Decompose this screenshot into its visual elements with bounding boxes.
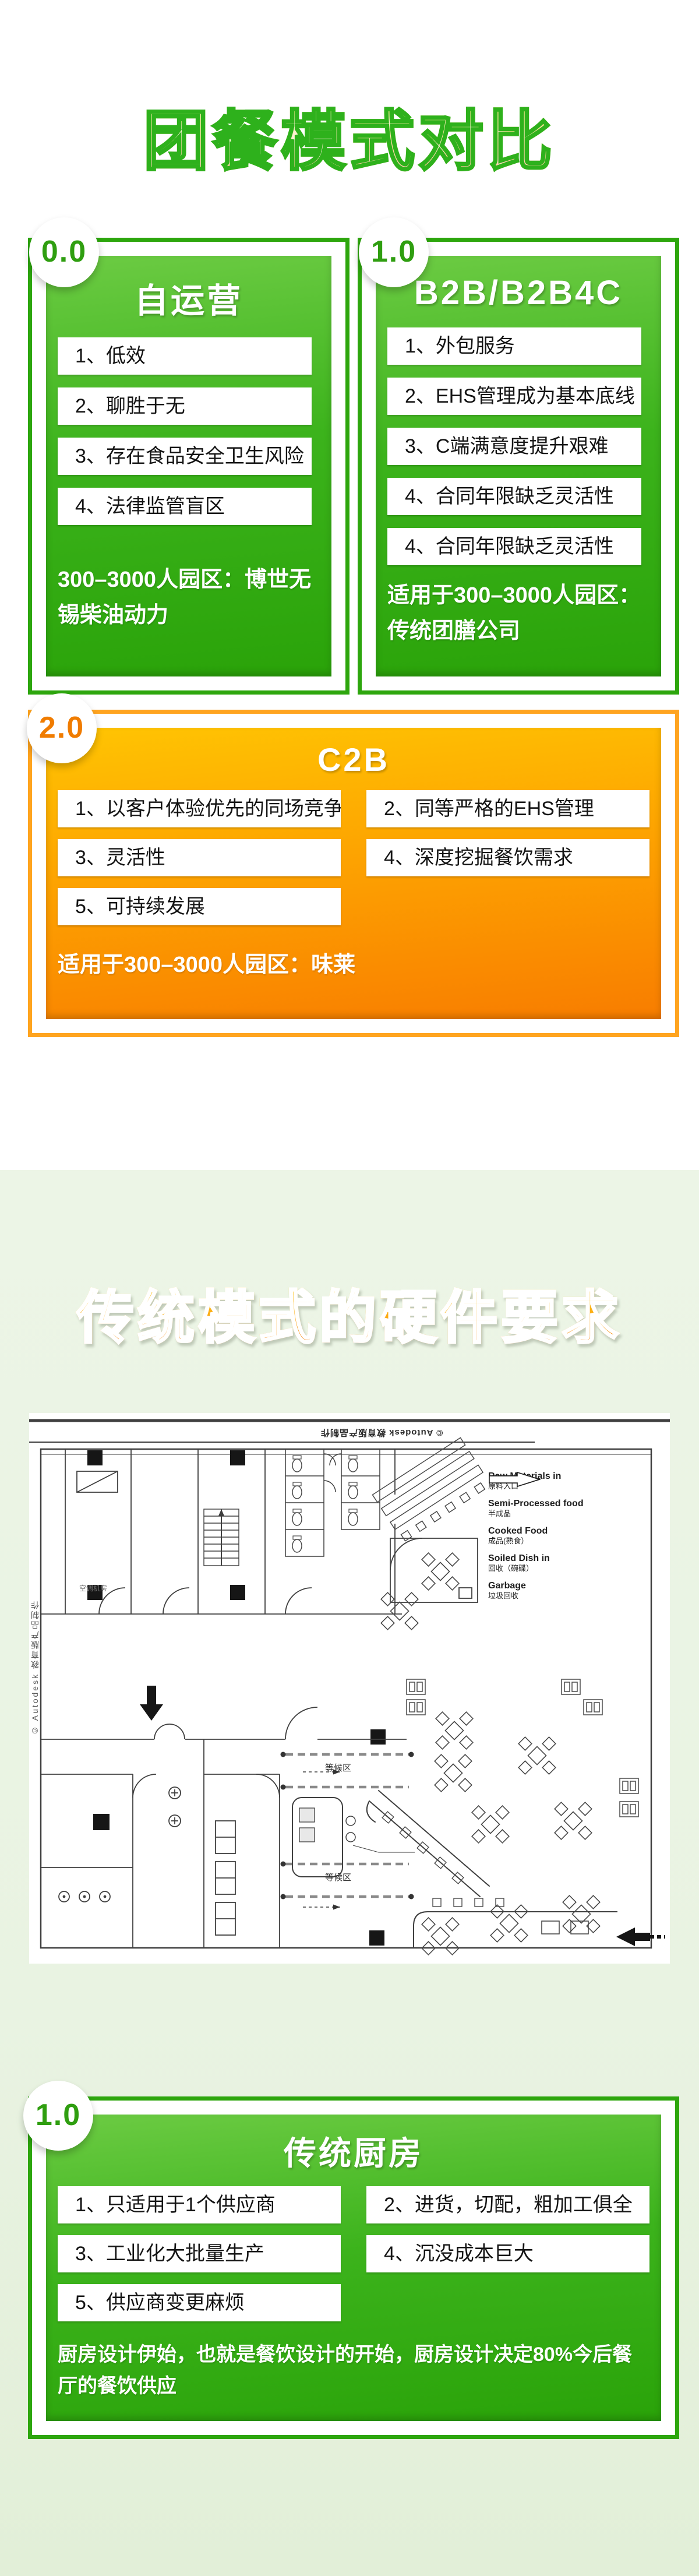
serving-counter: [367, 1791, 489, 1897]
legend-label-zh: 回收（碗碟）: [488, 1564, 550, 1573]
card-footer: 厨房设计伊始，也就是餐饮设计的开始，厨房设计决定80%今后餐厅的餐饮供应: [58, 2339, 649, 2402]
legend-row-garbage: Garbage 垃圾回收: [488, 1581, 669, 1601]
list-item: 4、合同年限缺乏灵活性: [387, 528, 641, 565]
legend-row-soiled-dish: Soiled Dish in 回收（碗碟）: [488, 1553, 669, 1573]
service-island: [292, 1772, 415, 1907]
card-title: B2B/B2B4C: [387, 256, 649, 327]
kitchen-floor-plan: © Autodesk 教育版产品制作 © Autodesk 教育版产品制作 空调…: [29, 1413, 670, 1964]
legend-label-en: Garbage: [488, 1581, 526, 1591]
room-label-hvac: 空调机房: [79, 1583, 107, 1593]
legend-label-zh: 成品(熟食）: [488, 1537, 548, 1546]
card-b2b-panel: B2B/B2B4C 1、外包服务 2、EHS管理成为基本底线 3、C端满意度提升…: [376, 256, 661, 676]
main-title: 团餐模式对比: [0, 89, 699, 183]
corridor: [41, 1707, 407, 1739]
soiled-dish-entry-arrow: [616, 1927, 665, 1946]
list-item: 4、深度挖掘餐饮需求: [366, 839, 649, 876]
autodesk-watermark-left: © Autodesk 教育版产品制作: [29, 1599, 41, 1735]
list-item: 5、供应商变更麻烦: [58, 2284, 341, 2321]
card-traditional-kitchen: 传统厨房 1、只适用于1个供应商 2、进货，切配，粗加工俱全 3、工业化大批量生…: [28, 2096, 679, 2439]
stairs: [204, 1509, 239, 1566]
card-c2b: C2B 1、以客户体验优先的同场竞争 2、同等严格的EHS管理 3、灵活性 4、…: [28, 710, 679, 1037]
card-c2b-panel: C2B 1、以客户体验优先的同场竞争 2、同等严格的EHS管理 3、灵活性 4、…: [46, 728, 661, 1019]
list-item: 3、工业化大批量生产: [58, 2235, 341, 2272]
card-title: 传统厨房: [58, 2115, 649, 2186]
legend-label-en: Semi-Processed food: [488, 1499, 584, 1509]
badge-1-0: 1.0: [359, 217, 429, 287]
card-title: C2B: [58, 728, 649, 790]
list-item: 4、沉没成本巨大: [366, 2235, 649, 2272]
room-label-waiting-1: 等候区: [325, 1761, 351, 1774]
badge-2-0: 2.0: [27, 693, 97, 763]
list-item: 1、以客户体验优先的同场竞争: [58, 790, 341, 827]
card-footer: 适用于300–3000人园区：传统团膳公司: [387, 578, 649, 649]
bench-rows: [372, 1437, 491, 1542]
card-self-operation-panel: 自运营 1、低效 2、聊胜于无 3、存在食品安全卫生风险 4、法律监管盲区 30…: [46, 256, 331, 676]
card-self-operation: 自运营 1、低效 2、聊胜于无 3、存在食品安全卫生风险 4、法律监管盲区 30…: [28, 238, 349, 695]
legend-label-zh: 半成品: [488, 1509, 584, 1518]
list-item: 5、可持续发展: [58, 888, 341, 925]
legend-row-cooked-food: Cooked Food 成品(熟食）: [488, 1526, 669, 1546]
list-item: 2、聊胜于无: [58, 387, 312, 425]
list-item: 3、存在食品安全卫生风险: [58, 438, 312, 475]
list-item: 3、灵活性: [58, 839, 341, 876]
legend-label-en: Cooked Food: [488, 1526, 548, 1537]
kitchen-rooms: [41, 1739, 280, 1948]
list-item: 1、外包服务: [387, 327, 641, 365]
card-title: 自运营: [58, 256, 320, 337]
list-item: 2、进货，切配，粗加工俱全: [366, 2186, 649, 2223]
list-item: 4、合同年限缺乏灵活性: [387, 478, 641, 515]
list-item: 3、C端满意度提升艰难: [387, 428, 641, 465]
badge-1-0-kitchen: 1.0: [23, 2081, 93, 2151]
plain-arrow-icon: [488, 1471, 542, 1488]
list-item: 4、法律监管盲区: [58, 488, 312, 525]
infographic-page: 团餐模式对比 自运营 1、低效 2、聊胜于无 3、存在食品安全卫生风险 4、法律…: [0, 0, 699, 2576]
autodesk-watermark-top: © Autodesk 教育版产品制作: [320, 1427, 443, 1439]
card-footer: 300–3000人园区：博世无锡柴油动力: [58, 562, 320, 633]
bottom-counter-seats: [433, 1898, 504, 1907]
list-item: 2、EHS管理成为基本底线: [387, 378, 641, 415]
flow-legend: Raw Materials in 原料入口 Semi-Processed foo…: [488, 1471, 669, 1608]
toilets: [285, 1449, 380, 1556]
list-item: 2、同等严格的EHS管理: [366, 790, 649, 827]
card-footer: 适用于300–3000人园区：味莱: [58, 947, 649, 983]
entry-arrow-down: [140, 1686, 163, 1721]
list-item: 1、只适用于1个供应商: [58, 2186, 341, 2223]
badge-0-0: 0.0: [29, 217, 99, 287]
room-label-waiting-2: 等候区: [325, 1871, 351, 1883]
section2-title: 传统模式的硬件要求: [0, 1271, 699, 1354]
list-item: 1、低效: [58, 337, 312, 375]
legend-label-zh: 垃圾回收: [488, 1591, 526, 1601]
card-b2b: B2B/B2B4C 1、外包服务 2、EHS管理成为基本底线 3、C端满意度提升…: [358, 238, 679, 695]
legend-label-en: Soiled Dish in: [488, 1553, 550, 1564]
card-traditional-kitchen-panel: 传统厨房 1、只适用于1个供应商 2、进货，切配，粗加工俱全 3、工业化大批量生…: [46, 2115, 661, 2421]
legend-row-semi-processed: Semi-Processed food 半成品: [488, 1499, 669, 1518]
